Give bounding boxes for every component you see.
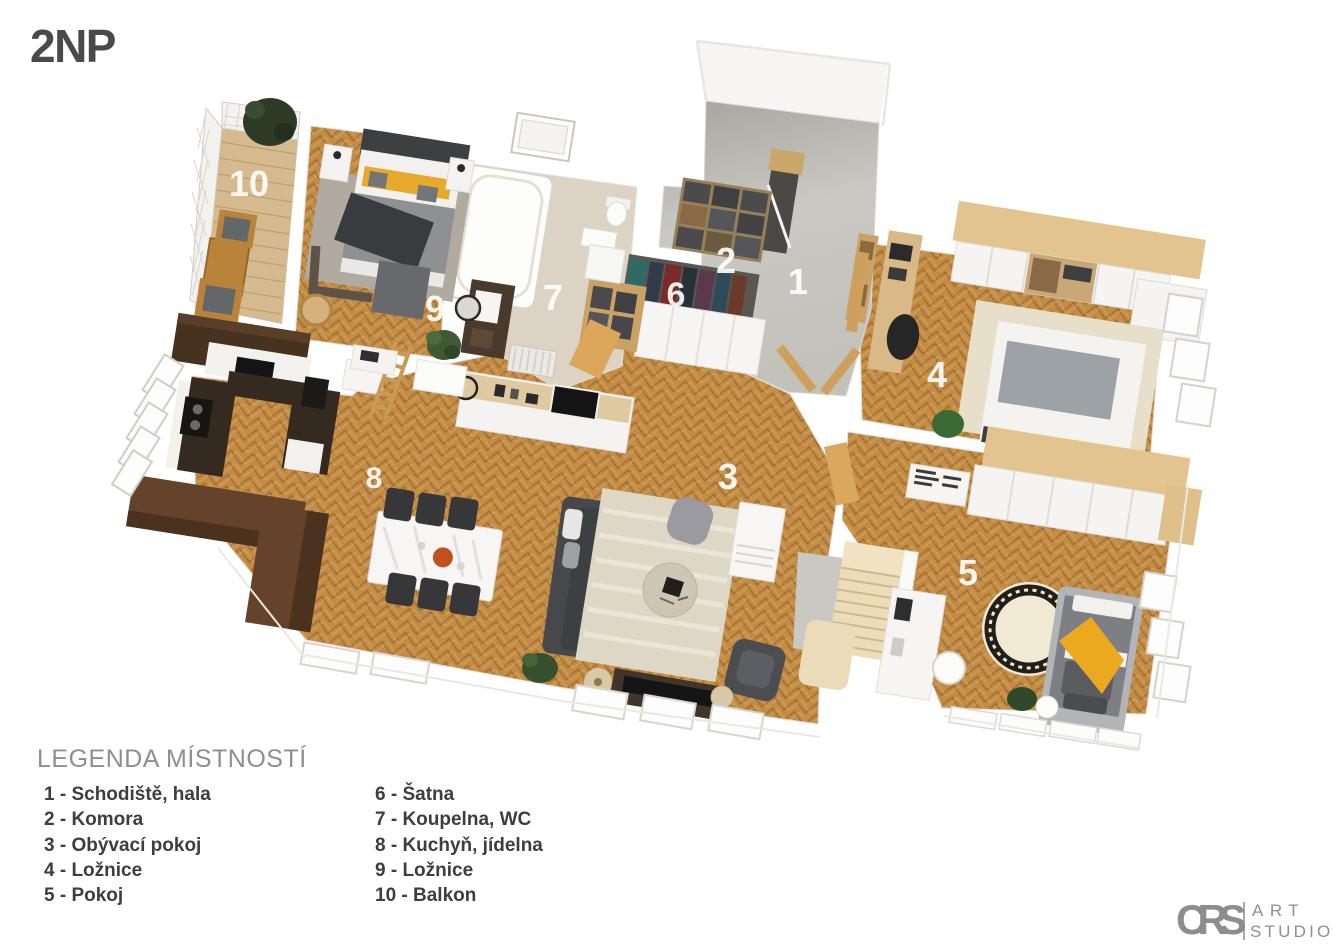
svg-text:8: 8	[366, 462, 383, 495]
svg-text:8 - Kuchyň, jídelna: 8 - Kuchyň, jídelna	[375, 835, 543, 856]
svg-text:2NP: 2NP	[30, 20, 116, 72]
svg-text:9 - Ložnice: 9 - Ložnice	[375, 860, 473, 881]
svg-text:6 - Šatna: 6 - Šatna	[375, 783, 455, 805]
svg-text:3: 3	[718, 456, 738, 497]
svg-text:7 - Koupelna, WC: 7 - Koupelna, WC	[375, 809, 532, 830]
svg-text:CRS: CRS	[1176, 896, 1246, 943]
svg-text:10: 10	[229, 163, 269, 204]
svg-text:6: 6	[667, 276, 686, 314]
svg-text:STUDIO: STUDIO	[1250, 922, 1333, 941]
svg-text:1 - Schodiště, hala: 1 - Schodiště, hala	[44, 784, 211, 805]
svg-text:7: 7	[543, 277, 563, 318]
svg-text:ART: ART	[1252, 901, 1305, 920]
svg-text:2: 2	[716, 240, 736, 281]
svg-text:5 - Pokoj: 5 - Pokoj	[44, 885, 123, 906]
svg-text:LEGENDA MÍSTNOSTÍ: LEGENDA MÍSTNOSTÍ	[37, 744, 307, 773]
svg-text:2 - Komora: 2 - Komora	[44, 809, 144, 830]
svg-text:10 - Balkon: 10 - Balkon	[375, 885, 476, 906]
svg-text:4 - Ložnice: 4 - Ložnice	[44, 860, 142, 881]
svg-text:3 - Obývací pokoj: 3 - Obývací pokoj	[44, 835, 201, 856]
svg-text:1: 1	[788, 261, 808, 302]
svg-text:5: 5	[958, 552, 978, 593]
svg-text:9: 9	[425, 288, 445, 329]
svg-text:4: 4	[927, 354, 947, 395]
